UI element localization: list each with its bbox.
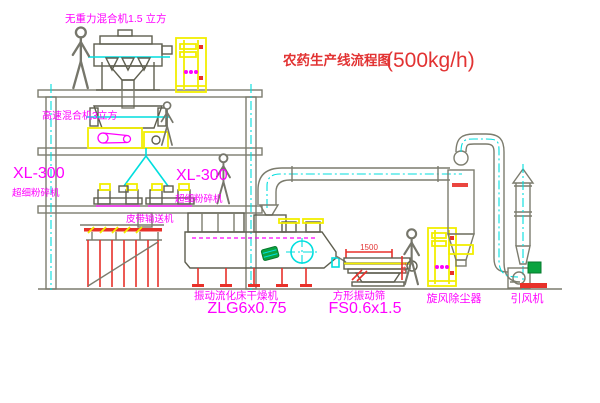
- belt-conveyor-label: 皮带输送机: [126, 213, 174, 225]
- drawing-canvas: 无重力混合机1.5 立方 农药生产线流程图 (500kg/h) 高速混合机3立方…: [0, 0, 600, 403]
- title-chinese: 农药生产线流程图: [282, 52, 391, 68]
- fluid-bed-dryer: [185, 213, 346, 287]
- sieve-length-dim: 1500: [360, 243, 378, 252]
- high-speed-mixer-label: 高速混合机3立方: [42, 109, 118, 122]
- bucket-elevator-bottom: [428, 228, 456, 286]
- pulverizer-left: [94, 184, 142, 206]
- y-chute: [124, 156, 168, 186]
- pulverizer-mid-label: 超细粉碎机: [175, 193, 223, 205]
- fan-label: 引风机: [511, 291, 544, 305]
- bucket-elevator-top: [176, 38, 206, 92]
- cyclone-label: 旋风除尘器: [427, 291, 482, 305]
- belt-conveyor: [80, 225, 164, 287]
- person-ground: [404, 229, 419, 284]
- sieve-height-dim: 541: [401, 262, 408, 274]
- cad-flow-diagram: 无重力混合机1.5 立方 农药生产线流程图 (500kg/h) 高速混合机3立方…: [0, 0, 600, 403]
- dryer-model-label: ZLG6x0.75: [207, 300, 286, 317]
- top-mixer-label: 无重力混合机1.5 立方: [65, 12, 167, 25]
- sieve-model-label: FS0.6x1.5: [329, 300, 402, 317]
- induced-draft-fan: [508, 262, 547, 288]
- cyclone-separator: [448, 151, 474, 266]
- xl300-left-label: XL-300: [13, 165, 65, 182]
- person-roof: [73, 27, 89, 88]
- title-capacity: (500kg/h): [386, 49, 475, 72]
- xl300-mid-label: XL-300: [176, 167, 228, 184]
- exhaust-duct: [258, 166, 462, 215]
- pulverizer-left-label: 超细粉碎机: [12, 187, 60, 199]
